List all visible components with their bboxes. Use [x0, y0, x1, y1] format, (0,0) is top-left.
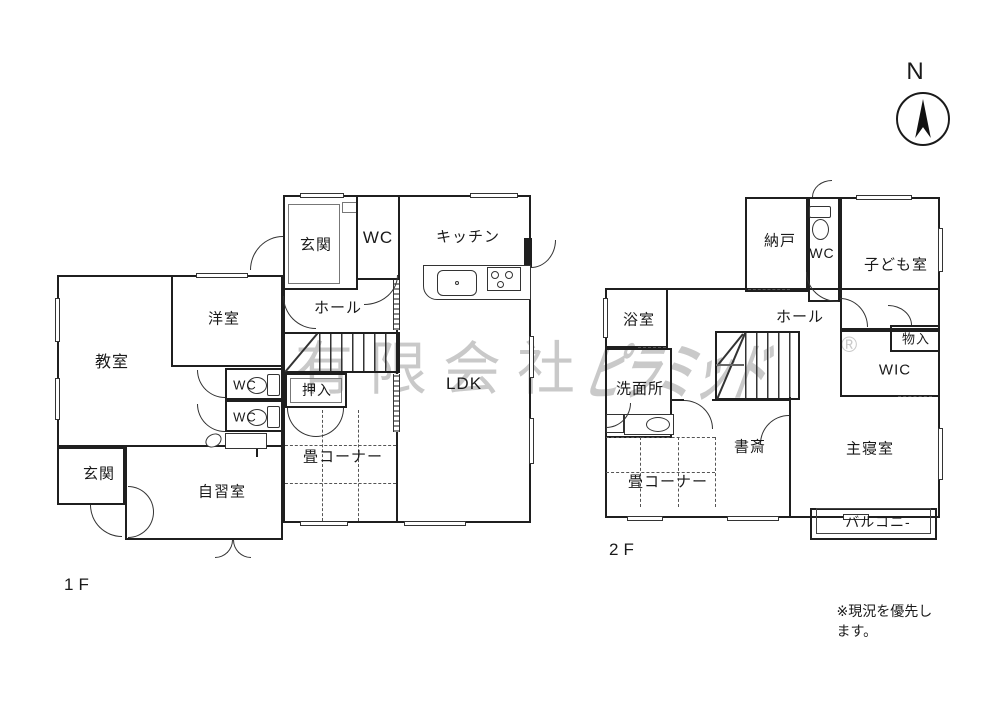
room-label-kyoushitsu: 教室 [95, 348, 129, 372]
tatami-grid-line [715, 437, 716, 507]
wall-segment [396, 432, 398, 523]
room-label-shushinshitsu: 主寝室 [846, 438, 894, 459]
room-label-wc1: WC [233, 378, 257, 393]
jishuushitsu-door-arc [215, 540, 233, 558]
floorplan-canvas: 有限会社 ピラミッド ® N [0, 0, 1000, 707]
room-label-wc-upper: WC [363, 228, 393, 248]
room-label-tatami-corner-1f: 畳コーナー [303, 446, 383, 467]
wall-segment [789, 397, 791, 518]
window [529, 336, 534, 378]
room-label-wc-2f: WC [809, 245, 834, 261]
faucet-stub [256, 449, 258, 457]
room-label-balcony: バルコニ- [845, 512, 910, 532]
room-label-senmenjo: 洗面所 [616, 378, 664, 399]
stair-treads [745, 333, 798, 398]
stair-landing-line [716, 364, 744, 366]
room-label-kitchen: キッチン [436, 226, 500, 247]
priority-note: ※現況を優先します。 [837, 601, 946, 641]
shoe-cabinet [342, 202, 357, 213]
room-label-monoire: 物入 [902, 329, 930, 348]
window [470, 193, 518, 198]
window [627, 516, 663, 521]
window [300, 193, 344, 198]
toilet-icon [812, 219, 829, 240]
burner [491, 271, 499, 279]
window [55, 298, 60, 342]
entry2-door-arc [90, 505, 122, 537]
room-label-genkan-upper: 玄関 [300, 234, 332, 255]
room-label-hall-2f: ホール [776, 306, 824, 327]
burner [497, 281, 504, 288]
toilet-icon [267, 406, 280, 428]
wall-segment [396, 330, 398, 374]
room-label-wc2: WC [233, 410, 257, 425]
window [603, 298, 608, 338]
tatami-grid-line [285, 483, 396, 484]
wc-exterior-door-arc [812, 180, 832, 197]
stair-treads [319, 334, 398, 371]
window [856, 195, 912, 200]
room-label-nando: 納戸 [764, 230, 796, 251]
window [938, 428, 943, 480]
room-label-wic: WIC [879, 362, 911, 379]
yokushitsu-door [638, 347, 666, 348]
floor1-label: 1F [64, 575, 94, 595]
tatami-grid-line [606, 437, 715, 438]
room-label-genkan-lower: 玄関 [83, 463, 115, 484]
room-label-kodomoshitsu: 子ども室 [864, 254, 928, 275]
window [938, 228, 943, 272]
floor2-label: 2F [609, 540, 639, 560]
window [404, 521, 466, 526]
room-label-ldk: LDK [446, 374, 482, 394]
toilet-icon [267, 374, 280, 396]
sliding-door [393, 374, 400, 432]
entry-door-arc [250, 236, 283, 270]
toilet-icon [809, 206, 831, 218]
stairs-2f [715, 331, 800, 400]
window [529, 418, 534, 464]
window [300, 521, 348, 526]
wic-opening [898, 396, 932, 397]
room-label-tatami-corner-2f: 畳コーナー [628, 471, 708, 492]
sink-drain [455, 281, 459, 285]
window [196, 273, 248, 278]
room-label-jishuushitsu: 自習室 [198, 481, 246, 502]
nando-opening [748, 289, 790, 290]
utility-sink [225, 433, 267, 449]
wall-segment [712, 399, 791, 401]
room-label-youshitsu: 洋室 [208, 308, 240, 329]
jishuushitsu-door-arc [233, 540, 251, 558]
burner [505, 271, 513, 279]
wall-segment [672, 399, 684, 401]
room-label-hall: ホール [314, 297, 362, 318]
room-label-yokushitsu: 浴室 [623, 309, 655, 330]
sink-icon [646, 417, 670, 432]
window [55, 378, 60, 420]
room-label-shosai: 書斎 [734, 436, 766, 457]
compass-north-label: N [906, 58, 923, 86]
room-label-oshiire: 押入 [302, 380, 332, 400]
window [727, 516, 779, 521]
kitchen-door-arc [531, 240, 556, 268]
